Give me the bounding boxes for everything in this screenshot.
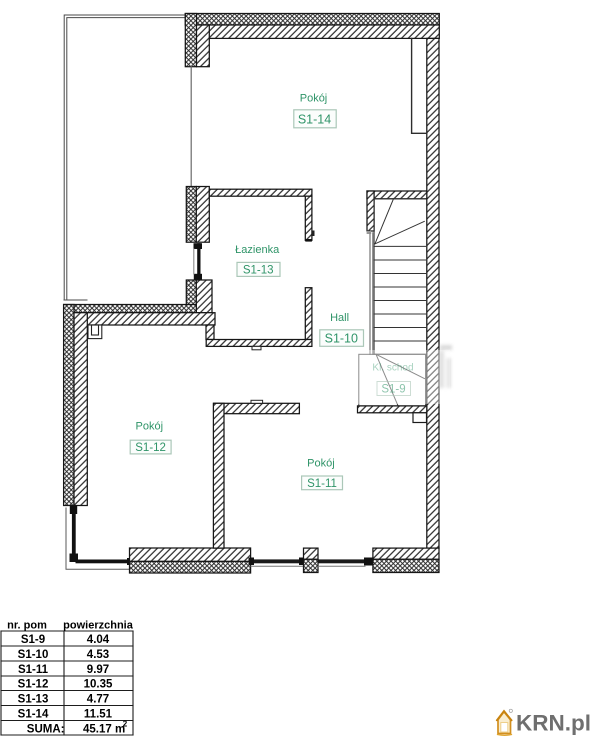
svg-text:4.77: 4.77	[87, 693, 109, 705]
svg-text:S1-13: S1-13	[243, 265, 274, 277]
svg-text:S1-14: S1-14	[18, 708, 49, 720]
svg-text:S1-12: S1-12	[135, 442, 166, 454]
svg-text:Łazienka: Łazienka	[235, 244, 280, 256]
svg-text:S1-12: S1-12	[18, 678, 49, 690]
svg-text:11.51: 11.51	[84, 708, 113, 720]
svg-text:Pokój: Pokój	[136, 420, 164, 432]
svg-text:Pokój: Pokój	[307, 457, 335, 469]
svg-text:S1-10: S1-10	[18, 649, 49, 661]
svg-text:S1-11: S1-11	[307, 478, 337, 490]
svg-text:S1-13: S1-13	[18, 693, 49, 705]
svg-text:nr. pom: nr. pom	[7, 620, 47, 632]
svg-text:S1-10: S1-10	[325, 332, 358, 346]
svg-text:S1-9: S1-9	[381, 384, 405, 396]
svg-text:KRN.pl: KRN.pl	[516, 711, 591, 736]
svg-text:Hall: Hall	[330, 312, 349, 324]
svg-text:Kl. schod: Kl. schod	[372, 363, 413, 374]
svg-text:4.04: 4.04	[87, 634, 110, 646]
svg-text:10.35: 10.35	[84, 678, 113, 690]
svg-text:9.97: 9.97	[87, 664, 109, 676]
svg-text:2: 2	[123, 719, 128, 728]
svg-text:Pokój: Pokój	[300, 93, 328, 105]
svg-text:S1-14: S1-14	[298, 113, 331, 127]
svg-text:S1-11: S1-11	[18, 664, 49, 676]
svg-text:SUMA:: SUMA:	[27, 724, 65, 736]
svg-text:4.53: 4.53	[87, 649, 109, 661]
svg-text:powierzchnia: powierzchnia	[63, 620, 134, 632]
svg-text:S1-9: S1-9	[21, 634, 45, 646]
svg-text:45.17 m: 45.17 m	[83, 724, 125, 736]
